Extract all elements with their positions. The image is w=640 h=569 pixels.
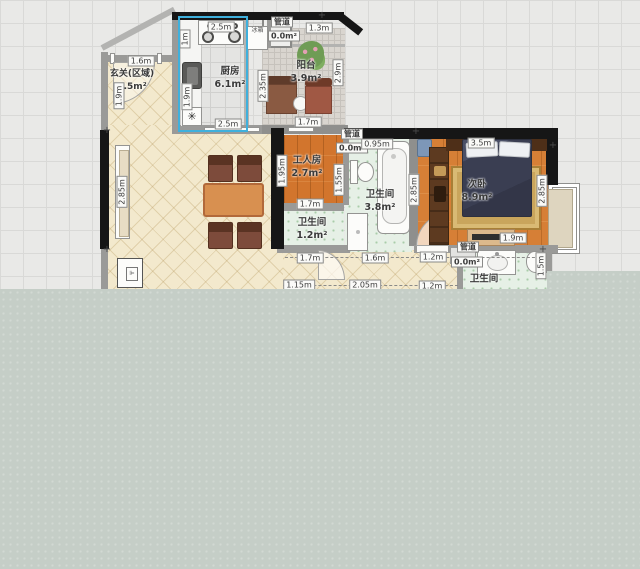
balcony-chair-right[interactable] <box>305 86 332 114</box>
dim-balcony-bottom: 1.7m <box>295 117 322 128</box>
dim-kitchen-right: 2.35m <box>258 70 269 102</box>
label-worker-room: 工人房 2.7m² <box>292 154 323 180</box>
label-bathroom-main: 卫生间 3.8m² <box>365 188 396 214</box>
wall-living-right <box>271 128 284 249</box>
dim-hall-2: 1.6m <box>362 253 389 264</box>
dim-hall-3: 1.2m <box>420 252 447 263</box>
dim-living-window: 2.85m <box>117 176 128 208</box>
dim-bedroom-right: 2.85m <box>537 175 548 207</box>
balcony-area: 3.9m² <box>291 72 322 85</box>
dim-bath-bedroom-wall: 2.85m <box>409 174 420 206</box>
dim-bedroom-top: 3.5m <box>468 138 495 149</box>
wall-left <box>100 130 109 249</box>
dining-chair[interactable] <box>208 222 233 249</box>
label-bathroom-small: 卫生间 1.2m² <box>297 216 328 242</box>
dim-bedroom-bottom: 1.9m <box>500 233 527 244</box>
bathroom-main-area: 3.8m² <box>365 201 396 214</box>
wall-left-lower <box>101 249 108 290</box>
dining-chair[interactable] <box>237 155 262 182</box>
balcony-door[interactable] <box>288 127 314 132</box>
dim-duct-mid-width: 0.95m <box>361 139 393 150</box>
label-bedroom: 次卧 8.9m² <box>462 178 493 204</box>
cabinet-appliance[interactable]: ⊫ <box>117 258 143 288</box>
nightstand-left[interactable] <box>446 139 463 151</box>
duct-bottom-area: 0.0m² <box>451 257 483 268</box>
dining-chair[interactable] <box>237 222 262 249</box>
balcony-chair-left[interactable] <box>266 84 297 114</box>
bedroom-area: 8.9m² <box>462 191 493 204</box>
wall-tick: + <box>412 127 420 137</box>
duct-top-area: 0.0m² <box>268 31 300 42</box>
wall-tick: + <box>549 141 557 151</box>
bathroom-main-name: 卫生间 <box>365 188 396 201</box>
duct-bottom-name: 管道 <box>457 242 479 253</box>
bathroom-small-area: 1.2m² <box>297 229 328 242</box>
wall-tick: + <box>318 11 326 21</box>
wardrobe[interactable] <box>429 147 449 245</box>
dining-chair[interactable] <box>208 155 233 182</box>
dim-balcony-top: 1.3m <box>306 23 333 34</box>
bay-window-sill <box>548 189 573 248</box>
bathroom-small-name: 卫生间 <box>297 216 328 229</box>
door-post-right <box>157 53 162 64</box>
balcony-name: 阳台 <box>291 59 322 72</box>
fridge-label: 冰箱 <box>251 27 263 34</box>
duct-mid-name: 管道 <box>341 129 363 140</box>
entrance-name: 玄关(区域) <box>110 68 154 81</box>
bathroom-bottom-name: 卫生间 <box>470 273 499 286</box>
wall-rooms-top <box>344 128 558 139</box>
background-overlay-right <box>547 271 640 290</box>
dim-worker-right: 1.55m <box>334 164 345 196</box>
wall-bedroom-right <box>546 128 558 185</box>
wall-left-upper <box>101 52 108 130</box>
fridge[interactable]: 冰箱 <box>247 26 268 50</box>
toilet-main[interactable] <box>357 162 374 182</box>
label-bathroom-bottom: 卫生间 <box>470 273 499 286</box>
dim-worker-bottom: 1.7m <box>297 199 324 210</box>
shower-tray[interactable] <box>347 213 368 251</box>
label-balcony: 阳台 3.9m² <box>291 59 322 85</box>
dim-bath-bottom-right: 1.5m <box>536 253 547 280</box>
dim-hall-1: 1.7m <box>297 253 324 264</box>
dimension-line-row1 <box>285 257 545 258</box>
wall-tick: + <box>103 245 111 255</box>
wall-entry-diagonal <box>101 7 176 51</box>
floorplan-canvas[interactable]: + + + + + + 冰箱 ✳ ⊫ <box>0 0 640 569</box>
dim-entrance-left: 1.9m <box>114 83 125 110</box>
dim-balcony-right: 2.9m <box>333 60 344 87</box>
dim-entrance-top: 1.6m <box>128 56 155 67</box>
bedroom-name: 次卧 <box>462 178 493 191</box>
selection-outline-kitchen <box>178 16 248 132</box>
background-overlay-bottom <box>0 289 640 569</box>
dim-worker-left: 1.95m <box>277 155 288 187</box>
worker-area: 2.7m² <box>292 167 323 180</box>
dining-table[interactable] <box>203 183 264 217</box>
worker-name: 工人房 <box>292 154 323 167</box>
duct-top-name: 管道 <box>271 17 293 28</box>
wall-tick: + <box>103 126 111 136</box>
